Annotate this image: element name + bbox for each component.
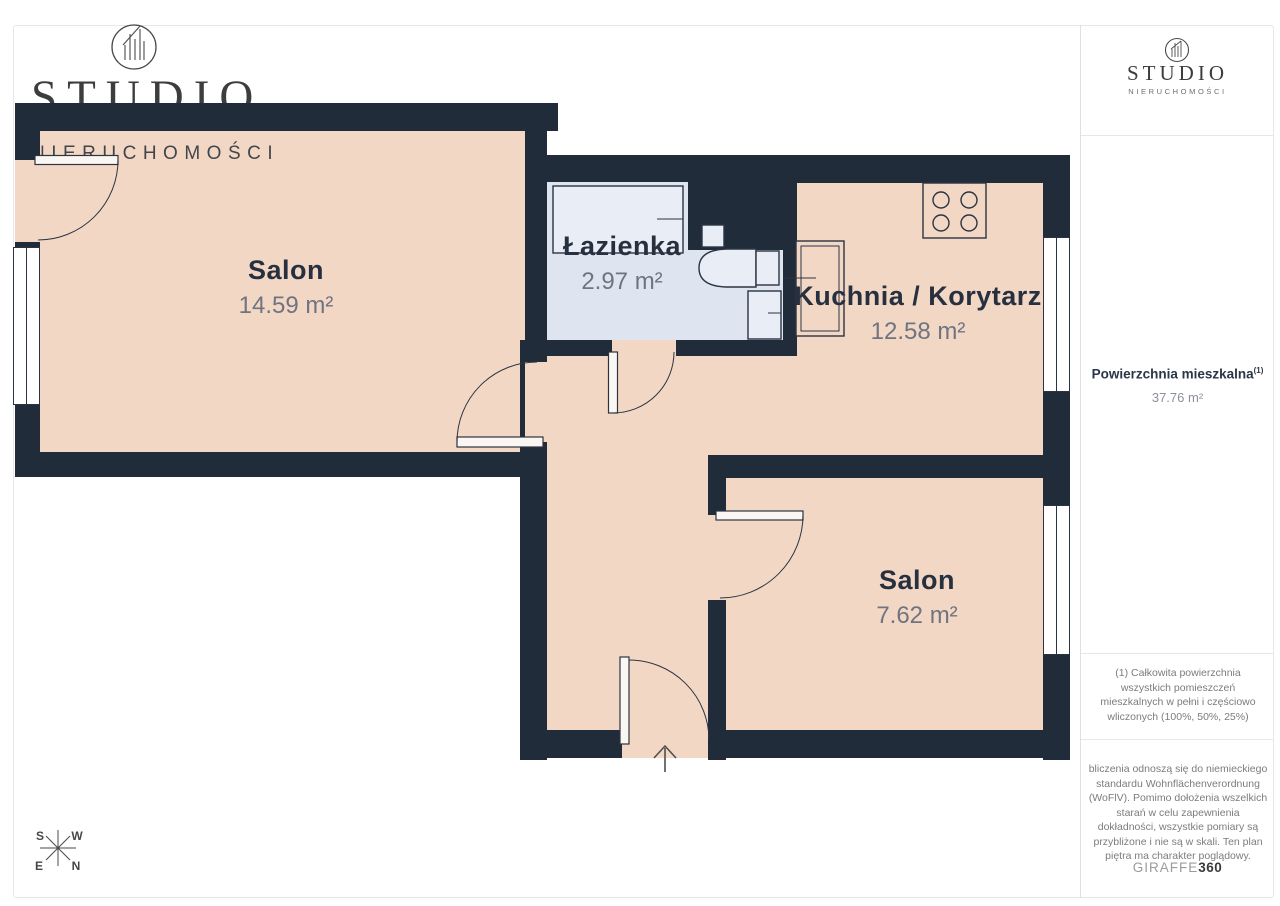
living-area-title: Powierzchnia mieszkalna(1) xyxy=(1085,366,1270,382)
vendor-name: GIRAFFE xyxy=(1133,860,1199,875)
window-salon-1 xyxy=(13,247,40,405)
window-kitchen xyxy=(1043,237,1070,392)
room-name: Kuchnia / Korytarz xyxy=(794,281,1042,312)
sidebar-divider-vertical xyxy=(1080,25,1081,898)
door-salon-2 xyxy=(716,511,803,598)
stove xyxy=(923,183,986,238)
sidebar-brand-subtitle: NIERUCHOMOŚCI xyxy=(1085,87,1270,96)
living-area-title-text: Powierzchnia mieszkalna xyxy=(1092,367,1254,382)
compass: S W E N xyxy=(35,829,83,873)
living-area-value: 37.76 m² xyxy=(1085,390,1270,405)
toilet xyxy=(699,225,779,287)
floorplan-page: STUDIO NIERUCHOMOŚCI xyxy=(0,0,1280,906)
vendor-logo: GIRAFFE360 xyxy=(1085,860,1270,875)
footnote-ref: (1) xyxy=(1254,366,1264,375)
footnote-1: (1) Całkowita powierzchnia wszystkich po… xyxy=(1089,666,1267,724)
footnote-2: bliczenia odnoszą się do niemieckiego st… xyxy=(1087,762,1269,864)
room-area: 7.62 m² xyxy=(876,602,957,630)
room-name: Salon xyxy=(239,255,334,286)
door-salon-1 xyxy=(457,362,543,447)
vendor-suffix: 360 xyxy=(1198,860,1222,875)
room-label-lazienka: Łazienka 2.97 m² xyxy=(563,231,681,296)
room-area: 12.58 m² xyxy=(794,318,1042,346)
compass-s: S xyxy=(36,829,44,843)
sidebar-brand: STUDIO xyxy=(1085,61,1270,86)
room-name: Salon xyxy=(876,565,957,596)
sidebar-logo-icon xyxy=(1166,39,1189,62)
entrance-arrow-icon xyxy=(654,746,676,772)
room-label-salon-2: Salon 7.62 m² xyxy=(876,565,957,630)
compass-w: W xyxy=(71,829,83,843)
door-entrance xyxy=(620,657,709,744)
sidebar-divider xyxy=(1081,653,1274,654)
door-bathroom xyxy=(609,352,675,413)
sink xyxy=(748,291,781,339)
room-area: 2.97 m² xyxy=(563,268,681,296)
room-label-salon-1: Salon 14.59 m² xyxy=(239,255,334,320)
sidebar-divider xyxy=(1081,135,1274,136)
room-area: 14.59 m² xyxy=(239,292,334,320)
compass-n: N xyxy=(72,859,81,873)
door-balcony xyxy=(35,156,118,241)
window-salon-2 xyxy=(1043,505,1070,655)
room-name: Łazienka xyxy=(563,231,681,262)
room-label-kuchnia: Kuchnia / Korytarz 12.58 m² xyxy=(794,281,1042,346)
compass-e: E xyxy=(35,859,43,873)
sidebar-divider xyxy=(1081,739,1274,740)
studio-logo-icon xyxy=(112,25,156,69)
